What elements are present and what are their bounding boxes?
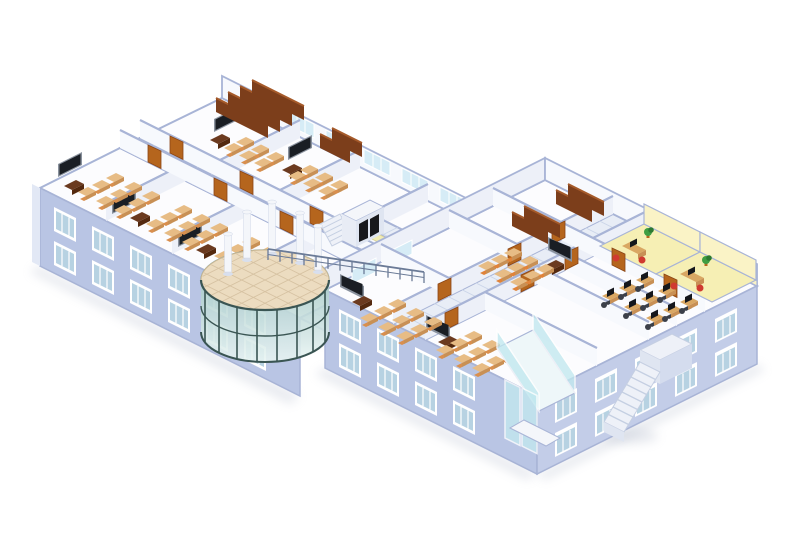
column-cap <box>243 210 252 214</box>
building-rendering <box>0 0 800 550</box>
red-chair <box>697 285 704 292</box>
office-chair <box>679 308 685 314</box>
column <box>244 212 251 258</box>
column-cap <box>296 211 305 215</box>
column-base <box>313 270 323 274</box>
column <box>269 202 276 252</box>
column-base <box>223 272 233 276</box>
column <box>225 234 232 272</box>
red-chair <box>613 255 620 262</box>
plant-icon <box>706 255 712 261</box>
office-chair <box>657 297 663 303</box>
plant-icon <box>648 227 654 233</box>
west-wing-gable <box>32 184 40 266</box>
office-chair <box>645 324 651 330</box>
column-cap <box>268 200 277 204</box>
column-cap <box>224 232 233 236</box>
red-chair <box>639 257 646 264</box>
office-chair <box>640 305 646 311</box>
office-chair <box>601 302 607 308</box>
column-cap <box>314 224 323 228</box>
office-chair <box>662 316 668 322</box>
office-chair <box>635 286 641 292</box>
red-chair <box>671 283 678 290</box>
office-chair <box>623 313 629 319</box>
entrance-glass-panel-1 <box>505 380 520 446</box>
column-base <box>242 258 252 262</box>
office-chair <box>618 294 624 300</box>
